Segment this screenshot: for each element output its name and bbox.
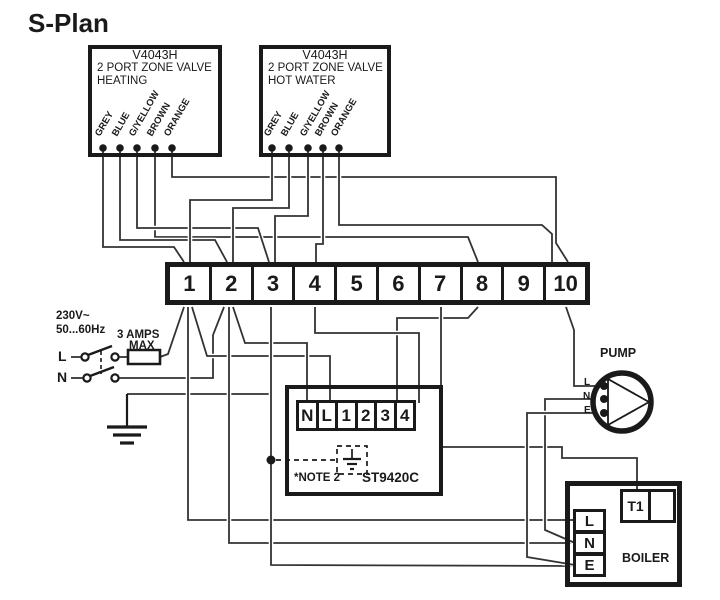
pump-terminal-l-dot — [600, 382, 608, 390]
programmer-terminals: N L 1 2 3 4 — [296, 400, 416, 431]
strip-terminal-9: 9 — [501, 267, 543, 300]
strip-terminal-1: 1 — [170, 267, 209, 300]
wire-hw-blue-to-strip2 — [233, 148, 289, 262]
neutral-label: N — [57, 369, 67, 385]
strip-terminal-2: 2 — [209, 267, 251, 300]
pump-terminal-e-label: E — [584, 405, 591, 416]
boiler-spare-terminal — [648, 489, 676, 523]
strip-terminal-4: 4 — [292, 267, 334, 300]
boiler-terminal-e: E — [573, 553, 606, 577]
strip-terminal-5: 5 — [334, 267, 376, 300]
neutral-switch-blade — [90, 367, 114, 376]
wire-hw-gyellow-to-strip3 — [275, 148, 308, 262]
programmer-model-label: ST9420C — [362, 470, 419, 485]
page-title: S-Plan — [28, 8, 109, 39]
programmer-terminal-4: 4 — [394, 400, 417, 431]
earth-junction-dot — [267, 456, 276, 465]
hotwater-valve-type: 2 PORT ZONE VALVE — [263, 62, 387, 75]
pump-terminal-l-label: L — [584, 377, 590, 388]
boiler-terminal-l: L — [573, 509, 606, 533]
strip-terminal-6: 6 — [376, 267, 418, 300]
fuse-max-label: MAX — [129, 340, 155, 352]
hotwater-valve-model: V4043H — [263, 49, 387, 62]
strip-terminal-7: 7 — [418, 267, 460, 300]
fuse-symbol — [128, 350, 160, 364]
heating-valve-model: V4043H — [92, 49, 218, 62]
note-2-label: *NOTE 2 — [294, 472, 340, 484]
pump-terminal-n-dot — [600, 395, 608, 403]
strip-terminal-10: 10 — [543, 267, 585, 300]
pump-terminal-e-dot — [600, 409, 608, 417]
wire-hw-orange-to-strip10 — [339, 148, 552, 262]
strip-terminal-3: 3 — [251, 267, 293, 300]
live-switch-contact-2 — [111, 353, 118, 360]
live-switch-contact-1 — [81, 353, 88, 360]
wiring-centre-terminal-strip: 1 2 3 4 5 6 7 8 9 10 — [165, 262, 590, 305]
heating-valve-circuit: HEATING — [92, 75, 218, 88]
pump-terminal-n-label: N — [583, 391, 590, 402]
boiler-label: BOILER — [622, 551, 669, 565]
heating-valve-type: 2 PORT ZONE VALVE — [92, 62, 218, 75]
neutral-switch-contact-2 — [111, 374, 118, 381]
hotwater-valve-circuit: HOT WATER — [263, 75, 387, 88]
neutral-switch-contact-1 — [83, 374, 90, 381]
live-label: L — [58, 348, 67, 364]
boiler-terminal-n: N — [573, 531, 606, 555]
mains-voltage-label: 230V~ — [56, 310, 90, 322]
boiler-t1-terminal: T1 — [620, 489, 651, 523]
live-switch-blade — [88, 346, 112, 355]
strip-terminal-8: 8 — [460, 267, 502, 300]
s-plan-wiring-diagram: S-Plan V4043H 2 PORT ZONE VALVE HEATING … — [0, 0, 720, 600]
pump-label: PUMP — [600, 346, 636, 360]
mains-frequency-label: 50...60Hz — [56, 324, 105, 336]
